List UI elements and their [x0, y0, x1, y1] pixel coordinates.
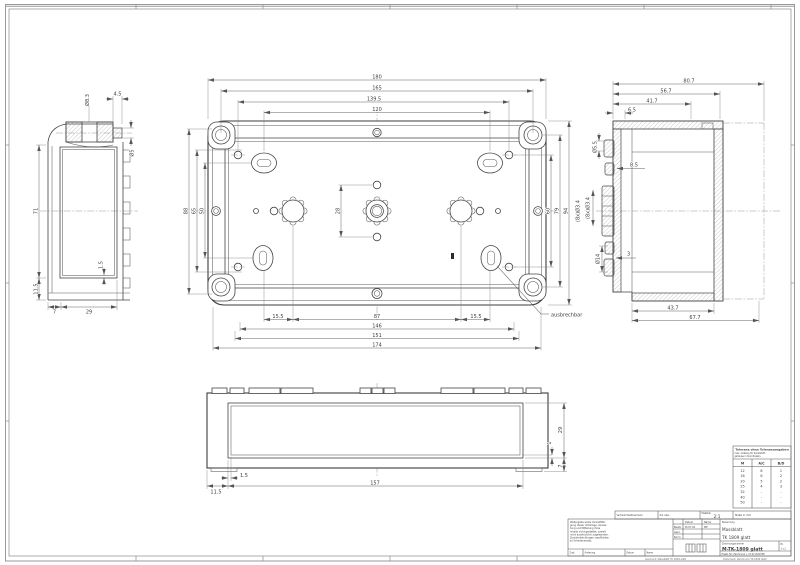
dim-d5: Ø5: [129, 149, 136, 156]
dim-43-7: 43.7: [667, 306, 678, 312]
dim-29-front: 29: [558, 427, 564, 433]
replacement-note: Ersatz für: Zeichnung v. 15.07.2002 ME: [722, 553, 766, 556]
dim-1: 1: [547, 441, 553, 444]
label-8x-d3-4: (8x)Ø3.4: [575, 200, 582, 222]
dim-151: 151: [372, 333, 382, 339]
dim-60: 60: [546, 208, 552, 214]
svg-text:20: 20: [740, 479, 744, 483]
svg-text:zu Schadenersatz.: zu Schadenersatz.: [570, 540, 592, 543]
approval-gepr: Gepr.: [674, 531, 681, 534]
left-view-dimensions: Ø8.3 4.5 Ø5 71 11.5 7 29 1.5: [34, 92, 136, 316]
rev-zust: Zust.: [570, 552, 576, 555]
tolerance-table-subtitle2: gehäuse in Koordinaten: [735, 455, 762, 458]
part-identification: Benennung Massblatt TK 1809 glatt Zeichn…: [720, 521, 791, 556]
tolerance-table-rows: 1281 1662 2052 2543 32-- 40-- 50--: [740, 469, 782, 505]
dim-6-5: 6.5: [628, 108, 636, 114]
dim-11-5-front: 11.5: [210, 490, 221, 496]
approval-bearb-name: ME: [704, 526, 708, 529]
rev-name: Name: [647, 552, 654, 555]
callout-ausbrechbar: ausbrechbar: [551, 313, 583, 319]
dim-4-5: 4.5: [114, 92, 122, 98]
dim-1-5: 1.5: [99, 261, 105, 269]
approval-bearb: Bearb.: [674, 526, 682, 529]
gear-knockout-center: [363, 197, 391, 225]
dim-87: 87: [374, 314, 380, 320]
dim-146: 146: [372, 324, 382, 330]
number-label: Zeichnungsnummer: [722, 543, 744, 546]
dim-65: 65: [192, 208, 198, 214]
gate-mark: [451, 253, 454, 259]
sheet-value: 1 v.1: [781, 548, 787, 551]
svg-text:-: -: [761, 490, 763, 494]
approval-bearb-date: 15.07.02: [685, 526, 696, 529]
dim-120: 120: [372, 107, 382, 113]
dim-8-5: 8.5: [630, 163, 638, 169]
dim-174: 174: [372, 343, 382, 349]
svg-text:3: 3: [780, 485, 782, 489]
svg-text:2: 2: [780, 479, 782, 483]
left-view-ribs: [123, 150, 130, 288]
dim-d8-3: Ø8.3: [84, 94, 91, 106]
tolerance-table: Toleranz ohne Toleranzangaben max. zuläs…: [733, 446, 791, 508]
name-label: Benennung: [722, 521, 735, 524]
svg-text:12: 12: [740, 469, 744, 473]
units-label: Maße in mm: [735, 513, 752, 517]
svg-text:-: -: [761, 501, 763, 505]
footer-print-note: Ausdruck: Massblatt TK 1809 glatt: [645, 558, 686, 561]
dim-41-7: 41.7: [646, 99, 657, 105]
svg-text:1: 1: [780, 469, 782, 473]
dim-180: 180: [372, 75, 382, 81]
dim-7-front: 7: [558, 464, 564, 467]
scale-label: Maßstab: [702, 512, 712, 515]
approval-col-name: Name: [704, 521, 712, 524]
svg-text:40: 40: [740, 495, 744, 499]
dim-165: 165: [372, 86, 382, 92]
dim-15-5-right: 15.5: [470, 314, 481, 320]
svg-text:25: 25: [740, 485, 744, 489]
svg-text:4: 4: [760, 485, 762, 489]
svg-text:-: -: [761, 495, 763, 499]
svg-text:50: 50: [740, 501, 744, 505]
approval-table: Datum Name Bearb. 15.07.02 ME Gepr. Norm: [673, 519, 720, 552]
gear-knockout-right: [447, 197, 475, 225]
view-right-section: 80.7 56.7 41.7 6.5 43.7 67.7 Ø5.5 8.5 (8…: [585, 79, 781, 324]
svg-text:16: 16: [740, 474, 744, 478]
part-name-line1: Massblatt: [722, 527, 743, 532]
dim-d14: Ø14: [595, 254, 602, 264]
view-front-elevation: 29 1 7 1.5 11.5 157: [207, 383, 567, 496]
dim-29: 29: [86, 310, 92, 316]
footer-document-note: Dokument: Zeichnung TK 1809 glatt: [723, 558, 767, 561]
dim-88: 88: [184, 208, 190, 214]
svg-text:6: 6: [760, 474, 762, 478]
tol-col-ac: A/C: [758, 462, 765, 466]
view-left-section: Ø8.3 4.5 Ø5 71 11.5 7 29 1.5: [34, 92, 139, 316]
title-block: Vertraulichkeitsvermerk Zul. Abw. Maßsta…: [568, 511, 791, 556]
svg-text:-: -: [780, 495, 782, 499]
svg-text:5: 5: [760, 479, 762, 483]
tolerance-table-title: Toleranz ohne Toleranzangaben: [735, 448, 788, 452]
dim-56-7: 56.7: [660, 89, 671, 95]
dim-80-7: 80.7: [683, 79, 694, 85]
front-view-tabs: [212, 388, 541, 394]
part-name-line2: TK 1809 glatt: [721, 535, 751, 540]
right-view-knockout-bumps: [602, 140, 614, 276]
rev-aenderung: Änderung: [585, 552, 596, 555]
dim-15-5-left: 15.5: [272, 314, 283, 320]
dim-d5-5: Ø5.5: [592, 141, 599, 153]
copyright-note: Weitergabe sowie Vervielfälti- gung dies…: [570, 521, 609, 543]
dim-94: 94: [564, 208, 570, 214]
dim-71: 71: [34, 208, 40, 214]
svg-text:2: 2: [780, 474, 782, 478]
view-top-interior: 180 165 139.5 120 15.5 87 15.5 146 151 1…: [184, 75, 584, 351]
dim-1-5-front: 1.5: [240, 473, 248, 479]
dim-3: 3: [627, 252, 630, 258]
dim-28: 28: [336, 208, 342, 214]
svg-text:-: -: [780, 490, 782, 494]
label-8x-d3-4-right: (8x)Ø3.4: [585, 197, 592, 219]
drawing-number: M-TK-1809 glatt: [722, 547, 764, 553]
approval-norm: Norm: [674, 536, 681, 539]
company-logo: [686, 544, 706, 552]
gear-knockout-left: [279, 197, 307, 225]
scale-value: 2:1: [714, 514, 721, 519]
tol-col-m: M: [741, 462, 745, 466]
approval-col-date: Datum: [685, 521, 694, 524]
technical-drawing-sheet: Ausdruck: Massblatt TK 1809 glatt Dokume…: [0, 0, 800, 565]
svg-text:-: -: [780, 501, 782, 505]
dim-7: 7: [53, 310, 56, 316]
dim-139-5: 139.5: [367, 97, 381, 103]
svg-text:32: 32: [740, 490, 744, 494]
tol-col-bd: B/D: [778, 462, 785, 466]
revision-strip: Zust. Änderung Datum Name: [568, 549, 673, 556]
dim-67-7: 67.7: [689, 315, 700, 321]
svg-text:8: 8: [760, 469, 762, 473]
dim-11-5: 11.5: [34, 283, 40, 294]
dim-79: 79: [555, 208, 561, 214]
dim-50: 50: [200, 208, 206, 214]
dim-157: 157: [370, 481, 380, 487]
confidential-label: Vertraulichkeitsvermerk: [617, 514, 644, 517]
sheet-label: Bl.: [781, 543, 784, 546]
rev-datum: Datum: [627, 552, 634, 555]
tolerance-label: Zul. Abw.: [660, 514, 670, 517]
